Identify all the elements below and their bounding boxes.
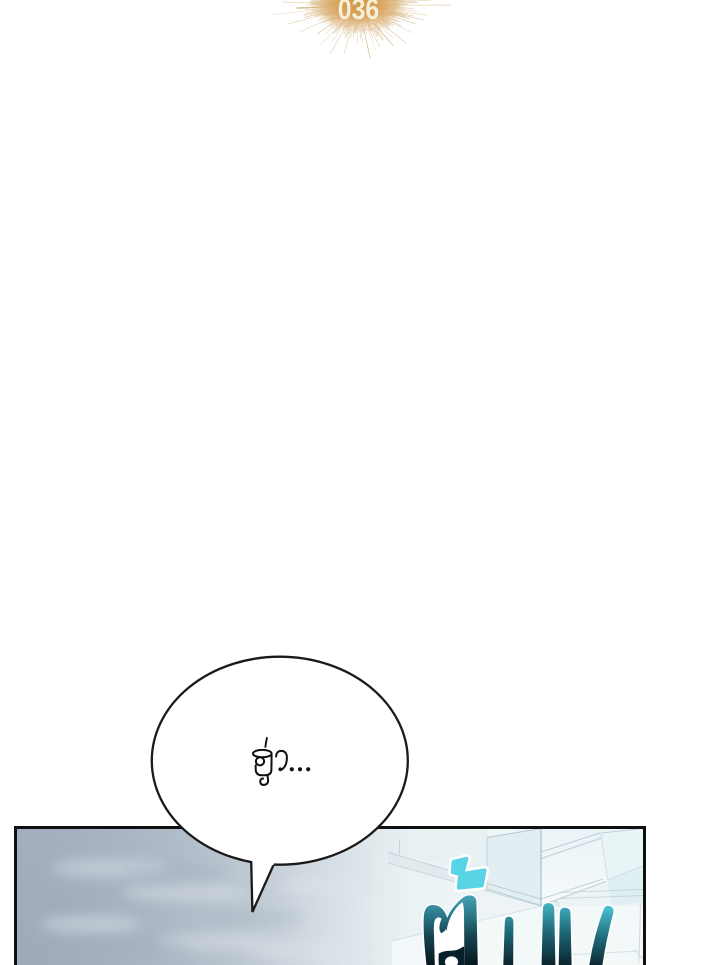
svg-text:036: 036 bbox=[338, 0, 380, 26]
